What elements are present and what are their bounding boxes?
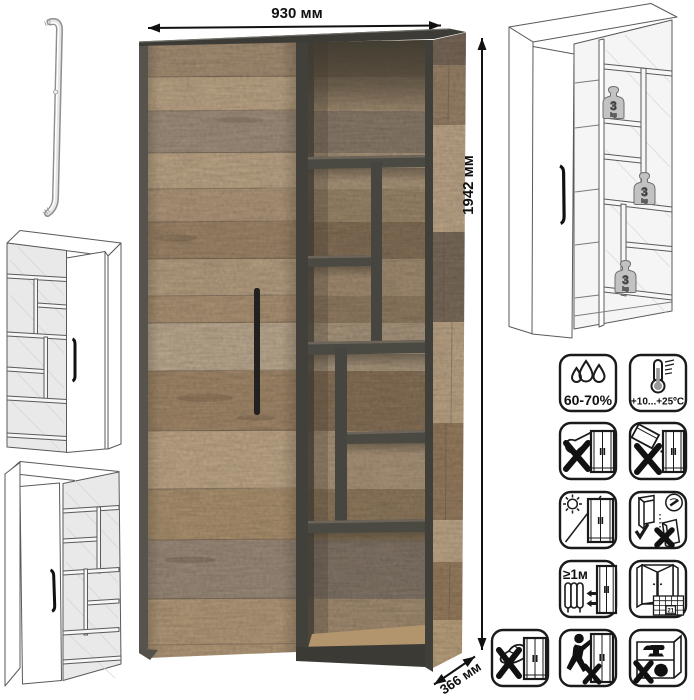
svg-text:1942 мм: 1942 мм	[460, 155, 477, 215]
svg-text:kg: kg	[641, 199, 647, 205]
svg-text:kg: kg	[622, 287, 628, 293]
svg-text:3: 3	[610, 101, 616, 113]
svg-text:930 мм: 930 мм	[271, 5, 322, 22]
svg-text:3: 3	[622, 275, 628, 287]
svg-text:3: 3	[641, 187, 647, 199]
svg-text:+10...+25ºC: +10...+25ºC	[631, 397, 684, 408]
svg-text:≥1м: ≥1м	[563, 567, 588, 582]
svg-text:kg: kg	[610, 113, 616, 119]
svg-text:21: 21	[667, 608, 674, 614]
svg-text:60-70%: 60-70%	[564, 392, 613, 408]
